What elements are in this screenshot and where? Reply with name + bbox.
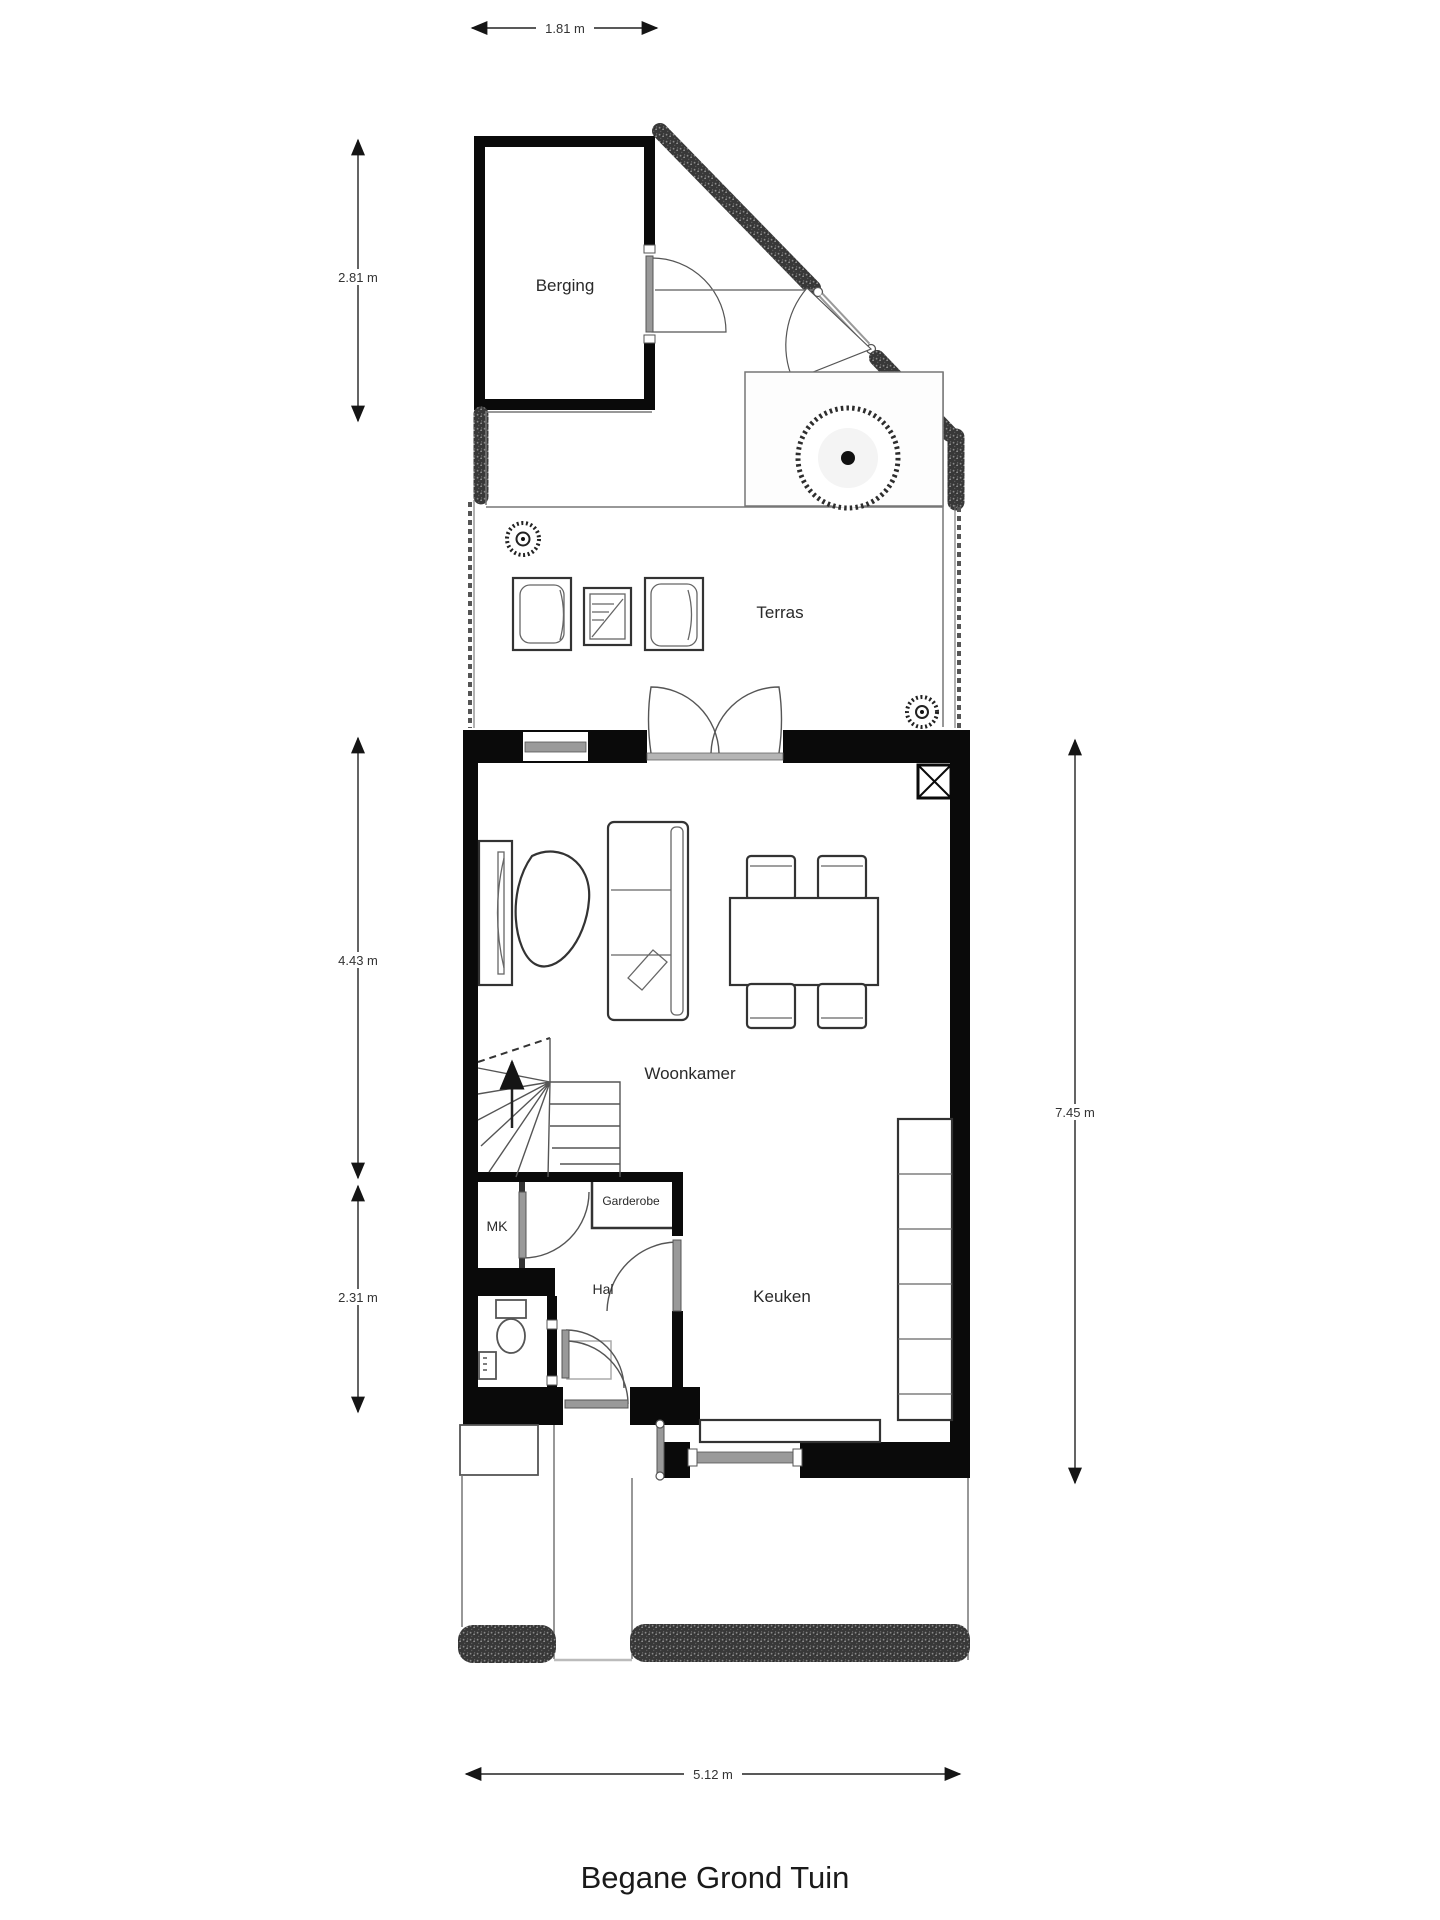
- toilet-wall-right: [547, 1296, 557, 1387]
- window-keuken: [688, 1442, 802, 1478]
- front-door: [563, 1341, 630, 1425]
- room-toilet: [479, 1296, 624, 1388]
- door-jamb: [644, 335, 655, 343]
- tv-sideboard: [479, 841, 512, 985]
- page-title: Begane Grond Tuin: [581, 1860, 850, 1895]
- door-hinge: [656, 1420, 664, 1428]
- threshold: [647, 753, 783, 760]
- lounge-chair-left: [513, 578, 571, 650]
- dim-house-height: 7.45 m: [1055, 1105, 1095, 1120]
- sideboard-frame: [479, 841, 512, 985]
- dimension-annotations: 1.81 m 2.81 m 4.43 m 2.31 m 7.45 m 5.12 …: [328, 20, 1105, 1782]
- coffee-table: [516, 852, 590, 967]
- dim-woonkamer-height: 4.43 m: [338, 953, 378, 968]
- door-jamb: [644, 245, 655, 253]
- staircase: [478, 1038, 620, 1177]
- toilet-door-leaf: [562, 1330, 569, 1378]
- side-table-frame: [584, 588, 631, 645]
- wall-divider-upper: [672, 1172, 683, 1236]
- room-woonkamer: Woonkamer: [478, 822, 878, 1177]
- sink: [479, 1352, 496, 1379]
- straight-treads: [550, 1104, 620, 1164]
- toilet-bowl: [497, 1319, 525, 1353]
- bush: [907, 697, 937, 727]
- toilet-tank: [496, 1300, 526, 1318]
- bush: [507, 523, 539, 555]
- dining-chair: [818, 856, 866, 900]
- storage-step: [460, 1425, 538, 1475]
- wall-divider-lower: [672, 1311, 683, 1387]
- hedge-left: [458, 1625, 556, 1663]
- room-label-garderobe: Garderobe: [602, 1194, 660, 1208]
- keuken-garden-door: [656, 1420, 664, 1480]
- mk-door-arc: [523, 1192, 589, 1258]
- room-label-keuken: Keuken: [753, 1287, 811, 1306]
- berging-door-arc: [652, 258, 726, 332]
- window-glass: [692, 1452, 798, 1463]
- room-berging: Berging: [474, 136, 726, 410]
- stair-cut-line: [478, 1038, 550, 1062]
- berging-door-leaf: [646, 256, 653, 332]
- dining-chair: [818, 984, 866, 1028]
- dining-chair: [747, 984, 795, 1028]
- stair-outline: [550, 1038, 620, 1177]
- mk-door-leaf: [519, 1192, 526, 1258]
- bush-center: [521, 537, 525, 541]
- window-glass: [525, 742, 586, 752]
- dining-set: [730, 856, 878, 1028]
- lounge-chair-right: [645, 578, 703, 650]
- room-label-hal: Hal: [592, 1281, 613, 1297]
- hedge-right: [630, 1624, 970, 1662]
- side-table: [584, 588, 631, 645]
- toilet-fixture: [496, 1300, 526, 1353]
- front-door-leaf: [565, 1400, 628, 1408]
- room-label-terras: Terras: [756, 603, 803, 622]
- dim-house-width: 5.12 m: [693, 1767, 733, 1782]
- window-jamb: [688, 1449, 697, 1466]
- french-doors: [647, 687, 783, 763]
- kitchen-cabinet-run: [898, 1119, 952, 1420]
- door-hinge: [656, 1472, 664, 1480]
- lounge-chair-frame: [645, 578, 703, 650]
- wall-woonkamer-hal: [463, 1172, 683, 1182]
- dim-top-width: 1.81 m: [545, 21, 585, 36]
- berging-floor: [485, 147, 644, 399]
- room-label-berging: Berging: [536, 276, 595, 295]
- window-jamb: [793, 1449, 802, 1466]
- tree-trunk: [841, 451, 855, 465]
- terrace-edge-upper: [486, 412, 652, 505]
- wall-bottom-keuken-right: [800, 1442, 970, 1478]
- door-jamb: [547, 1320, 557, 1329]
- room-mk: MK: [487, 1182, 590, 1268]
- sofa: [608, 822, 688, 1020]
- winder-treads: [478, 1068, 550, 1177]
- room-terras: Terras: [486, 372, 943, 727]
- dim-hal-height: 2.31 m: [338, 1290, 378, 1305]
- dim-berging-height: 2.81 m: [338, 270, 378, 285]
- keuken-door-leaf: [673, 1240, 681, 1311]
- doormat: [567, 1341, 611, 1379]
- dining-chair: [747, 856, 795, 900]
- room-garderobe: Garderobe: [592, 1182, 672, 1228]
- bush-center: [920, 710, 924, 714]
- sink-basin: [479, 1352, 496, 1379]
- sofa-frame: [608, 822, 688, 1020]
- room-label-mk: MK: [487, 1218, 509, 1234]
- room-label-woonkamer: Woonkamer: [644, 1064, 736, 1083]
- room-keuken: Keuken: [700, 1119, 952, 1442]
- floorplan-canvas: 1.81 m 2.81 m 4.43 m 2.31 m 7.45 m 5.12 …: [0, 0, 1440, 1920]
- wall-mk-toilet: [463, 1268, 555, 1296]
- door-jamb: [547, 1376, 557, 1385]
- wall-bottom-mid: [630, 1387, 700, 1425]
- garden-door-leaf: [657, 1426, 664, 1474]
- dining-table: [730, 898, 878, 985]
- kitchen-counter-bottom: [700, 1420, 880, 1442]
- wall-bottom-left: [463, 1387, 563, 1425]
- window-top: [523, 732, 588, 761]
- shaft-box: [918, 765, 951, 798]
- keuken-door-arc: [607, 1242, 676, 1311]
- tree: [798, 408, 898, 508]
- wall-bottom-keuken-left: [663, 1442, 690, 1478]
